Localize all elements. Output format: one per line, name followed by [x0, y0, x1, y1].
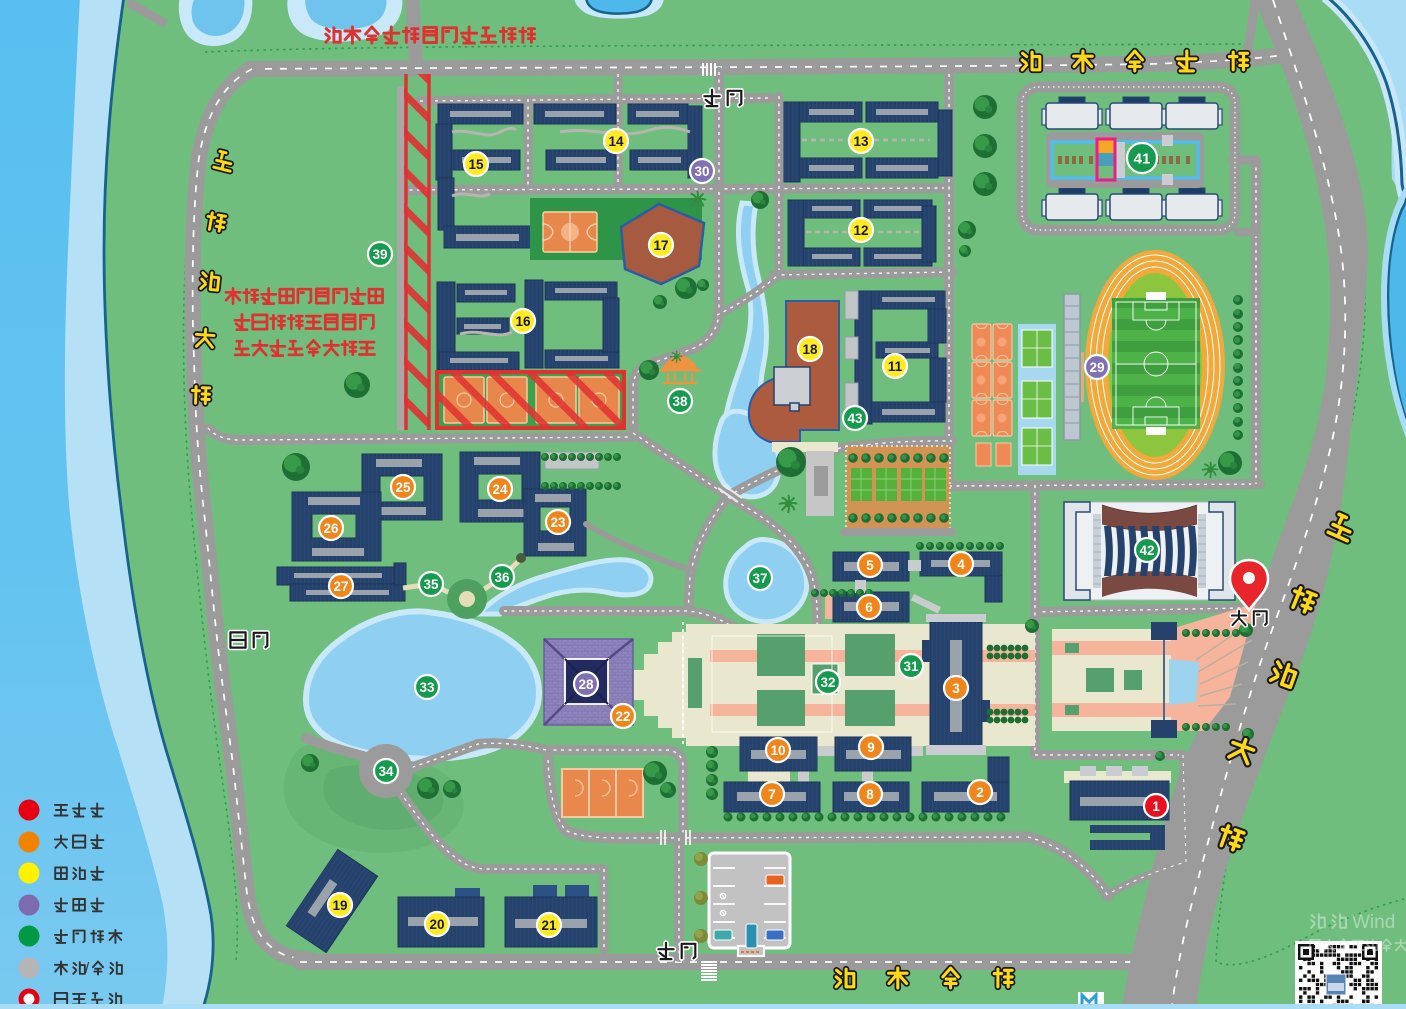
svg-text:18: 18 — [802, 342, 818, 357]
svg-text:31: 31 — [903, 659, 919, 674]
svg-text:21: 21 — [541, 918, 557, 933]
svg-text:2: 2 — [976, 785, 984, 800]
svg-text:38: 38 — [672, 394, 688, 409]
svg-text:1: 1 — [1152, 799, 1160, 814]
svg-text:25: 25 — [395, 480, 411, 495]
svg-text:43: 43 — [847, 411, 863, 426]
svg-text:30: 30 — [694, 164, 709, 179]
svg-text:28: 28 — [578, 677, 594, 692]
svg-text:32: 32 — [820, 675, 835, 690]
svg-text:16: 16 — [515, 314, 531, 329]
svg-text:14: 14 — [608, 134, 624, 149]
svg-text:26: 26 — [323, 521, 339, 536]
svg-text:20: 20 — [429, 917, 444, 932]
svg-text:5: 5 — [866, 558, 874, 573]
svg-text:33: 33 — [419, 680, 435, 695]
svg-text:41: 41 — [1134, 150, 1151, 167]
svg-text:22: 22 — [615, 709, 630, 724]
svg-text:36: 36 — [494, 570, 510, 585]
svg-text:42: 42 — [1139, 543, 1154, 558]
svg-text:11: 11 — [888, 359, 903, 374]
svg-text:27: 27 — [333, 579, 348, 594]
svg-text:34: 34 — [378, 764, 394, 779]
svg-text:39: 39 — [372, 247, 387, 262]
svg-text:8: 8 — [866, 787, 874, 802]
svg-text:29: 29 — [1089, 360, 1104, 375]
svg-text:4: 4 — [957, 557, 965, 572]
svg-text:37: 37 — [752, 571, 767, 586]
svg-text:17: 17 — [653, 238, 668, 253]
svg-text:15: 15 — [468, 157, 484, 172]
svg-text:Wind: Wind — [1352, 912, 1395, 933]
svg-text:24: 24 — [492, 482, 508, 497]
svg-text:35: 35 — [423, 577, 439, 592]
svg-text:10: 10 — [770, 743, 785, 758]
svg-text:13: 13 — [853, 134, 869, 149]
svg-text:19: 19 — [332, 898, 347, 913]
svg-text:6: 6 — [865, 600, 873, 615]
svg-text:12: 12 — [853, 223, 868, 238]
svg-text:9: 9 — [867, 740, 875, 755]
svg-text:23: 23 — [550, 515, 566, 530]
svg-text:7: 7 — [768, 787, 776, 802]
svg-text:3: 3 — [952, 681, 960, 696]
